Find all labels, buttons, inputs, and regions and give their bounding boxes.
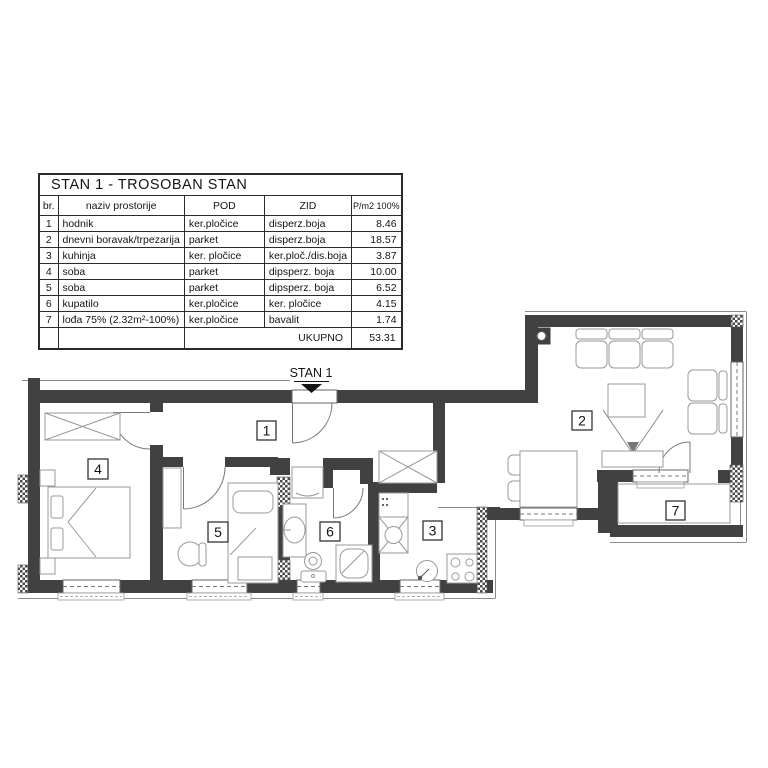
- room-label-6: 6: [320, 522, 340, 541]
- svg-text:6: 6: [326, 524, 334, 540]
- sofa-icon: [576, 329, 673, 368]
- coffee-table-icon: [608, 384, 645, 417]
- svg-text:7: 7: [672, 503, 680, 519]
- single-bed-icon: [228, 483, 278, 583]
- floorplan-document: STAN 1 - TROSOBAN STAN br. naziv prostor…: [0, 0, 768, 768]
- bathroom-door-arc: [334, 488, 364, 518]
- entrance-label: STAN 1: [290, 366, 333, 393]
- floor-plan-drawing: STAN 1 1 2 3 4 5: [0, 0, 768, 768]
- svg-text:3: 3: [429, 523, 437, 539]
- chair-icon: [178, 542, 206, 566]
- washing-machine-icon: [292, 467, 323, 498]
- svg-text:5: 5: [214, 524, 222, 540]
- room-label-3: 3: [423, 521, 442, 540]
- svg-text:4: 4: [94, 461, 102, 477]
- double-bed-icon: [48, 487, 130, 558]
- furniture: [40, 328, 730, 583]
- loggia-door-arc: [659, 442, 690, 473]
- tv-stand-icon: [602, 451, 663, 467]
- room-label-2: 2: [572, 411, 592, 430]
- kitchen-sink-icon: [379, 517, 408, 553]
- wardrobe-icon: [45, 413, 120, 440]
- room-label-7: 7: [666, 501, 685, 520]
- shower-icon: [336, 545, 372, 582]
- sofa-right-icon: [688, 370, 727, 434]
- room-label-5: 5: [208, 522, 228, 542]
- entrance-label-text: STAN 1: [290, 366, 333, 380]
- second-sink-icon: [417, 561, 438, 582]
- entrance-door-arc: [293, 403, 333, 443]
- room-label-1: 1: [257, 421, 276, 440]
- room-label-4: 4: [88, 459, 108, 479]
- dining-table-icon: [520, 451, 577, 507]
- column-icon: [533, 328, 550, 344]
- hall-wardrobe-icon: [379, 451, 437, 483]
- svg-text:1: 1: [263, 423, 271, 439]
- svg-text:2: 2: [578, 413, 586, 429]
- stove-icon: [447, 554, 477, 583]
- washbasin-icon: [283, 504, 306, 557]
- desk-icon: [163, 468, 181, 528]
- entrance-door-threshold: [292, 390, 337, 403]
- room5-door-arc: [184, 467, 226, 509]
